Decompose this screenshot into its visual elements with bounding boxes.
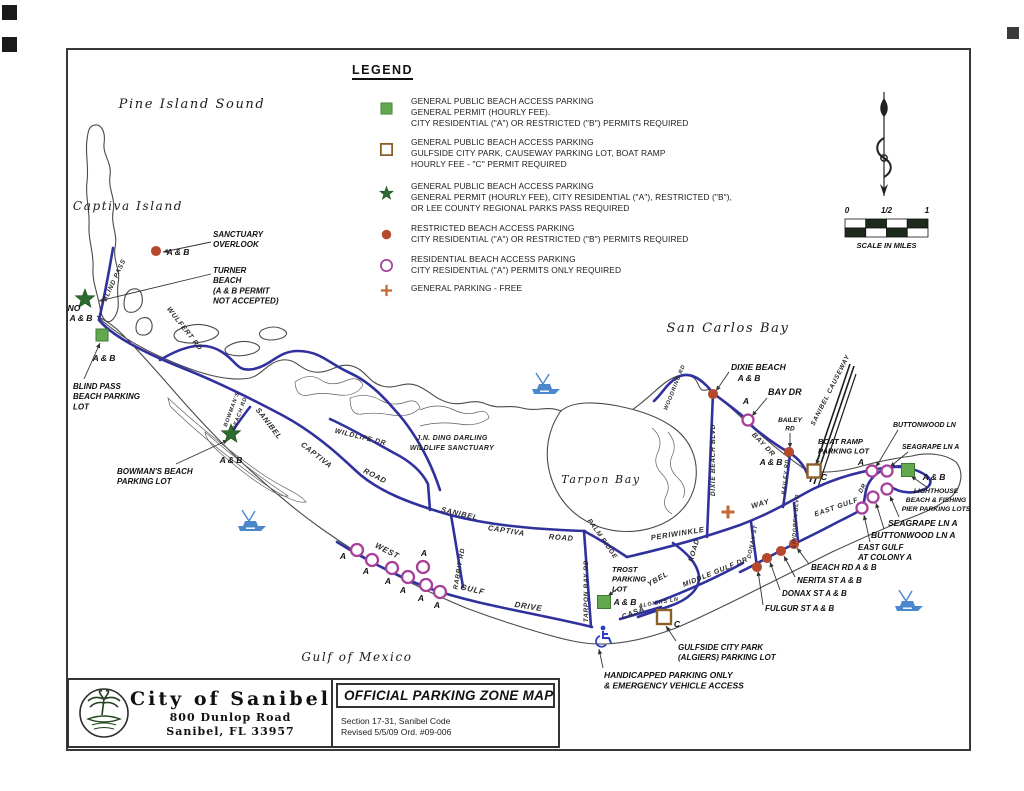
green-square-icon <box>379 101 394 116</box>
map-section-info: Section 17-31, Sanibel Code Revised 5/5/… <box>341 716 451 738</box>
callout-leader-arrowhead <box>716 386 721 391</box>
permit-point-label: C <box>674 619 681 629</box>
permit-point-label: C <box>821 472 828 482</box>
permit-point-label: A & B <box>69 313 93 323</box>
permit-point-label: A & B <box>219 455 243 465</box>
city-address-line2: Sanibel, FL 33957 <box>130 725 331 738</box>
legend-item: GENERAL PUBLIC BEACH ACCESS PARKINGGENER… <box>379 181 732 214</box>
permit-point-label: A <box>857 457 864 467</box>
open-circle-marker <box>386 562 398 574</box>
red-dot-marker <box>776 546 786 556</box>
open-circle-icon <box>379 258 394 273</box>
green-square-marker <box>96 329 108 341</box>
callout-label: EAST GULFAT COLONY A <box>857 543 912 562</box>
scale-tick-label: 0 <box>845 206 850 215</box>
permit-point-label: A & B <box>166 247 190 257</box>
permit-point-label: NO <box>68 303 81 313</box>
open-circle-marker <box>351 544 363 556</box>
open-circle-marker <box>402 571 414 583</box>
water-label: Gulf of Mexico <box>301 650 412 664</box>
legend-item: RESIDENTIAL BEACH ACCESS PARKINGCITY RES… <box>379 254 621 276</box>
north-arrow <box>877 92 891 196</box>
red-dot-marker <box>382 230 391 239</box>
open-circle-marker <box>867 466 878 477</box>
green-star-icon <box>379 186 394 201</box>
callout-label: SEAGRAPE LN A <box>902 444 959 451</box>
legend-item: GENERAL PARKING - FREE <box>379 283 522 298</box>
area-label: WILDLIFE SANCTUARY <box>410 445 495 452</box>
legend-item: GENERAL PUBLIC BEACH ACCESS PARKINGGULFS… <box>379 137 666 170</box>
red-dot-marker <box>784 447 794 457</box>
legend-item-text: GENERAL PUBLIC BEACH ACCESS PARKINGGULFS… <box>411 137 666 170</box>
map-title-box: OFFICIAL PARKING ZONE MAP <box>336 683 555 708</box>
open-circle-marker <box>882 466 893 477</box>
open-square-marker <box>808 465 821 478</box>
legend-item: GENERAL PUBLIC BEACH ACCESS PARKINGGENER… <box>379 96 688 129</box>
open-square-icon <box>379 142 394 157</box>
title-block-map-info: OFFICIAL PARKING ZONE MAP Section 17-31,… <box>331 680 558 746</box>
boat-icon <box>895 590 923 611</box>
boat-icon <box>532 373 560 394</box>
legend-item-text: RESIDENTIAL BEACH ACCESS PARKINGCITY RES… <box>411 254 621 276</box>
permit-point-label: A <box>420 548 427 558</box>
map-title: OFFICIAL PARKING ZONE MAP <box>344 688 554 703</box>
area-label: J.N. DING DARLING <box>416 435 487 442</box>
open-square-marker <box>381 144 392 155</box>
red-dot-marker <box>151 246 161 256</box>
title-block-identity: City of Sanibel 800 Dunlop Road Sanibel,… <box>69 680 331 746</box>
permit-point-label: A <box>433 600 440 610</box>
red-dot-marker <box>762 553 772 563</box>
callout-label: BEACH RD A & B <box>811 563 877 572</box>
permit-point-label: A <box>417 593 424 603</box>
permit-point-label: A <box>742 396 749 406</box>
scan-corner-marks <box>2 5 1019 52</box>
road-label: TARPON BAY RD <box>583 560 590 622</box>
city-seal-logo <box>78 687 130 739</box>
water-label: Pine Island Sound <box>118 97 266 112</box>
callout-label: BOWMAN'S BEACHPARKING LOT <box>117 467 193 486</box>
legend-item-text: GENERAL PUBLIC BEACH ACCESS PARKINGGENER… <box>411 96 688 129</box>
green-square-marker <box>598 596 611 609</box>
legend-item-text: GENERAL PARKING - FREE <box>411 283 522 298</box>
callout-leader-arrowhead <box>598 649 602 654</box>
boat-icon <box>238 510 266 531</box>
open-circle-marker <box>366 554 378 566</box>
open-circle-marker <box>868 492 879 503</box>
callout-label: BAILEYRD <box>778 417 803 433</box>
permit-point-label: A & B <box>613 597 637 607</box>
callout-label: HANDICAPPED PARKING ONLY& EMERGENCY VEHI… <box>604 670 744 691</box>
permit-point-label: A <box>399 585 406 595</box>
road-label: DIXIE BEACH BLVD <box>710 424 717 496</box>
open-circle-marker <box>882 484 893 495</box>
open-circle-marker <box>857 503 868 514</box>
legend-item: RESTRICTED BEACH ACCESS PARKINGCITY RESI… <box>379 223 688 245</box>
permit-point-label: A & B <box>759 457 783 467</box>
parking-zone-map-page: Pine Island SoundCaptiva IslandSan Carlo… <box>0 0 1024 791</box>
city-address-line1: 800 Dunlop Road <box>130 711 331 724</box>
city-name: City of Sanibel <box>130 688 331 710</box>
callout-label: TURNERBEACH(A & B PERMITNOT ACCEPTED) <box>213 266 279 306</box>
callout-label: NERITA ST A & B <box>797 576 862 585</box>
red-dot-marker <box>752 562 762 572</box>
callout-label: BAY DR <box>768 387 802 397</box>
callout-label: BLIND PASSBEACH PARKINGLOT <box>73 382 140 411</box>
scale-caption: SCALE IN MILES <box>856 241 916 250</box>
callout-label: BUTTONWOOD LN A <box>871 530 956 540</box>
open-circle-marker <box>434 586 446 598</box>
plus-icon <box>379 283 394 298</box>
open-circle-marker <box>381 260 392 271</box>
callout-label: DIXIE BEACH <box>731 362 787 372</box>
callout-label: BOAT RAMPPARKING LOT <box>818 437 871 456</box>
scale-tick-label: 1/2 <box>881 206 893 215</box>
section-line1: Section 17-31, Sanibel Code <box>341 716 451 727</box>
open-circle-marker <box>743 415 754 426</box>
water-label: San Carlos Bay <box>667 321 790 336</box>
green-square-marker <box>381 103 392 114</box>
red-dot-icon <box>379 227 394 242</box>
section-line2: Revised 5/5/09 Ord. #09-006 <box>341 727 451 738</box>
permit-point-label: A & B <box>92 353 116 363</box>
callout-label: FULGUR ST A & B <box>765 604 834 613</box>
legend-item-text: GENERAL PUBLIC BEACH ACCESS PARKINGGENER… <box>411 181 732 214</box>
legend-title: LEGEND <box>352 63 413 80</box>
legend-item-text: RESTRICTED BEACH ACCESS PARKINGCITY RESI… <box>411 223 688 245</box>
red-dot-marker <box>708 389 718 399</box>
open-circle-marker <box>417 561 429 573</box>
permit-point-label: A <box>339 551 346 561</box>
road-label: ROAD <box>548 532 573 543</box>
permit-point-label: A <box>362 566 369 576</box>
plus-marker <box>381 285 392 296</box>
permit-point-label: A <box>384 576 391 586</box>
callout-label: SEAGRAPE LN A <box>888 518 958 528</box>
permit-point-label: A & B <box>737 373 761 383</box>
callout-label: BUTTONWOOD LN <box>893 422 957 429</box>
water-label: Tarpon Bay <box>561 473 640 486</box>
scale-tick-label: 1 <box>925 206 930 215</box>
scale-bar: 01/21SCALE IN MILES <box>845 206 930 250</box>
callout-label: DONAX ST A & B <box>782 589 847 598</box>
open-square-marker <box>657 610 671 624</box>
callout-label: SANCTUARYOVERLOOK <box>213 230 264 249</box>
green-star-marker <box>380 187 393 200</box>
green-square-marker <box>902 464 915 477</box>
open-circle-marker <box>420 579 432 591</box>
callout-label: GULFSIDE CITY PARK(ALGIERS) PARKING LOT <box>678 643 777 662</box>
permit-point-label: A & B <box>922 472 946 482</box>
water-label: Captiva Island <box>73 199 183 213</box>
title-block: City of Sanibel 800 Dunlop Road Sanibel,… <box>67 678 560 748</box>
